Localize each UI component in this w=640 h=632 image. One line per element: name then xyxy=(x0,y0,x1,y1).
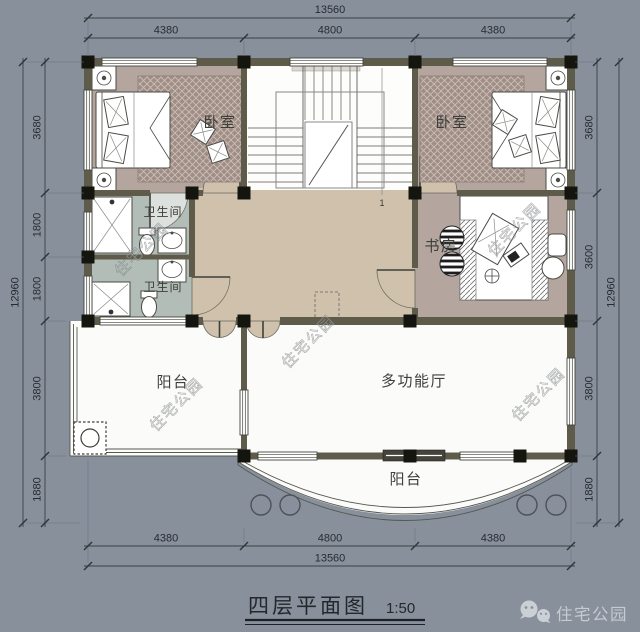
room-label-balcony-bottom: 阳台 xyxy=(389,471,422,488)
dim-left-seg-5: 1880 xyxy=(32,477,44,501)
dim-top-seg-1: 4380 xyxy=(154,25,178,37)
chair xyxy=(440,252,464,276)
dimensions-right: 3680 3600 3800 1880 12960 xyxy=(575,58,623,527)
dim-right-seg-3: 3800 xyxy=(584,376,596,400)
round-column xyxy=(280,495,300,515)
dim-right-total: 12960 xyxy=(606,277,618,308)
room-label-bedroom-right: 卧室 xyxy=(435,114,468,131)
floor-plan-screenshot: 1 xyxy=(0,0,640,632)
chair xyxy=(548,234,566,256)
dim-left-seg-3: 1800 xyxy=(32,277,44,301)
dimensions-top: 13560 4380 4800 4380 xyxy=(84,4,575,56)
wechat-icon xyxy=(520,601,551,624)
round-column xyxy=(251,495,271,515)
room-label-multi-hall: 多功能厅 xyxy=(381,373,447,390)
dim-left-total: 12960 xyxy=(10,277,22,308)
room-label-bathroom-lower: 卫生间 xyxy=(143,280,182,294)
title-block: 四层平面图 1:50 xyxy=(245,595,425,625)
dim-top-total: 13560 xyxy=(315,4,346,16)
brand-name: 住宅公园 xyxy=(556,605,628,624)
dim-right-seg-1: 3680 xyxy=(584,115,596,139)
dimensions-left: 3680 1800 1800 3800 1880 12960 xyxy=(10,58,85,527)
dim-top-seg-3: 4380 xyxy=(481,25,505,37)
plan-title: 四层平面图 xyxy=(248,595,368,618)
dim-bottom-seg-2: 4800 xyxy=(318,533,342,545)
dim-right-seg-4: 1880 xyxy=(584,477,596,501)
dim-left-seg-2: 1800 xyxy=(32,213,44,237)
room-label-bathroom-upper: 卫生间 xyxy=(143,205,182,219)
round-column xyxy=(517,495,537,515)
dim-left-seg-1: 3680 xyxy=(32,115,44,139)
room-label-bedroom-left: 卧室 xyxy=(203,114,236,131)
dim-bottom-seg-1: 4380 xyxy=(154,533,178,545)
dim-left-seg-4: 3800 xyxy=(32,376,44,400)
dim-right-seg-2: 3600 xyxy=(584,245,596,269)
round-column xyxy=(546,495,566,515)
dim-top-seg-2: 4800 xyxy=(318,25,342,37)
brand-badge: 住宅公园 xyxy=(520,601,628,625)
side-table xyxy=(542,257,564,279)
plan-scale: 1:50 xyxy=(386,600,415,617)
stair-direction-number: 1 xyxy=(379,198,384,208)
dim-bottom-total: 13560 xyxy=(315,553,346,565)
floor-plan-svg: 1 xyxy=(0,0,640,632)
dim-bottom-seg-3: 4380 xyxy=(481,533,505,545)
room-label-study: 书房 xyxy=(424,238,457,255)
